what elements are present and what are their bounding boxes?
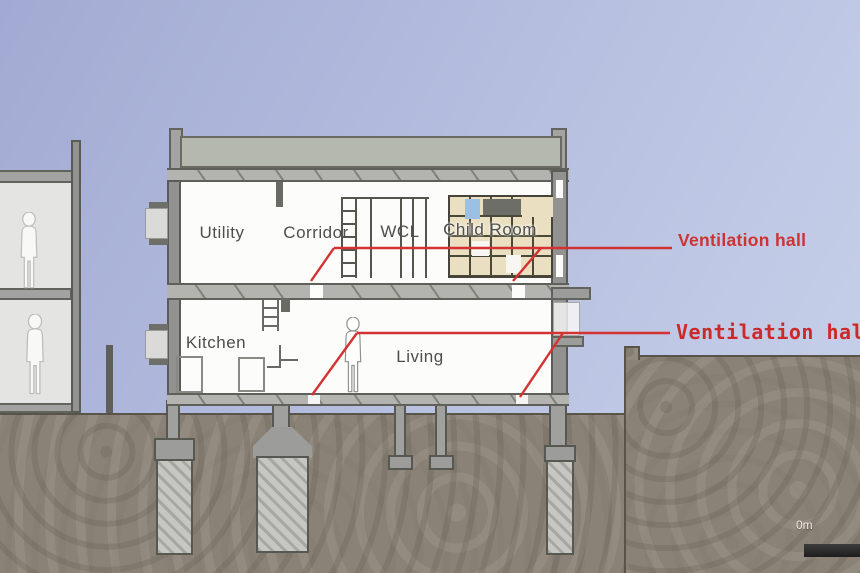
right-wall-window bbox=[556, 180, 563, 198]
ventilation-label-upper: Ventilation hall bbox=[678, 230, 806, 251]
person-silhouette bbox=[12, 212, 46, 290]
furniture-cell-white bbox=[506, 255, 521, 273]
pile-shaft bbox=[156, 459, 193, 555]
scale-bar bbox=[804, 544, 860, 557]
base-slab-vent-gap bbox=[308, 395, 320, 404]
base-slab-vent-gap bbox=[516, 395, 528, 404]
pier-stem bbox=[394, 400, 406, 457]
wall-vent-bar bbox=[149, 359, 168, 365]
partition-utility-corridor bbox=[276, 182, 283, 207]
ground-mound-lip bbox=[624, 346, 640, 360]
ventilation-label-lower: Ventilation hall bbox=[676, 320, 860, 344]
pier-cap bbox=[388, 455, 413, 470]
bulkhead-kitchen-living bbox=[281, 298, 290, 312]
base-floor-slab bbox=[167, 393, 569, 406]
wall-vent-bar bbox=[149, 239, 168, 245]
kitchen-cabinet bbox=[176, 356, 203, 393]
balcony-step bbox=[551, 336, 584, 347]
pile-neck bbox=[166, 400, 180, 440]
neighbor-base-slab bbox=[0, 403, 81, 413]
pile-shaft bbox=[256, 456, 309, 553]
wall-vent-box bbox=[145, 208, 168, 239]
room-label-living: Living bbox=[396, 347, 443, 367]
neighbor-right-wall bbox=[71, 140, 81, 413]
furniture-cell-white bbox=[472, 241, 489, 256]
ceiling-slab bbox=[167, 168, 569, 182]
room-label-wc: WCL bbox=[380, 222, 419, 242]
mid-floor-slab bbox=[167, 283, 569, 300]
kitchen-cabinet bbox=[238, 357, 265, 392]
mid-slab-vent-gap bbox=[310, 285, 323, 298]
section-diagram: 0m bbox=[0, 0, 860, 573]
balcony-slab bbox=[551, 287, 591, 300]
kitchen-counter-bracket bbox=[267, 345, 281, 368]
kitchen-ladder bbox=[262, 300, 279, 331]
ground-mound-right bbox=[624, 355, 860, 573]
pier-stem bbox=[435, 400, 447, 457]
room-label-child-room: Child Room bbox=[443, 220, 537, 240]
room-label-utility: Utility bbox=[199, 223, 244, 243]
scale-zero-label: 0m bbox=[796, 518, 813, 532]
roof-slab bbox=[180, 136, 562, 168]
furniture-cell-plain bbox=[522, 197, 553, 217]
pile-shaft bbox=[546, 460, 574, 555]
furniture-window-blue bbox=[465, 199, 480, 219]
ground-left bbox=[0, 413, 626, 573]
right-wall-window bbox=[556, 255, 563, 277]
kitchen-counter-line bbox=[281, 359, 298, 361]
wall-vent-box bbox=[145, 330, 168, 359]
fence-post bbox=[106, 345, 113, 413]
room-label-corridor: Corridor bbox=[283, 223, 348, 243]
neighbor-roof-slab bbox=[0, 170, 81, 183]
person-silhouette bbox=[16, 314, 54, 396]
furniture-cell-dark bbox=[483, 199, 521, 215]
pile-cap bbox=[154, 438, 195, 461]
person-silhouette bbox=[336, 317, 370, 394]
pile-neck bbox=[549, 400, 567, 447]
mid-slab-vent-gap bbox=[512, 285, 525, 298]
pier-cap bbox=[429, 455, 454, 470]
room-label-kitchen: Kitchen bbox=[186, 333, 246, 353]
bay-window bbox=[553, 302, 580, 336]
